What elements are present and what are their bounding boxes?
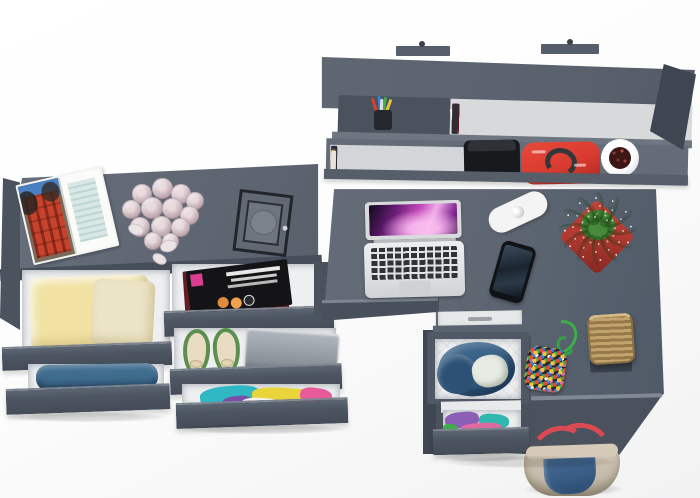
wicker-basket — [586, 312, 635, 365]
magazine-text-column — [67, 177, 108, 242]
shelf-mount-knob — [419, 41, 425, 47]
pencil-cup-body — [374, 110, 392, 130]
lantern-latch — [282, 225, 288, 231]
shelf-pot — [601, 139, 639, 177]
folded-beige-shirt — [90, 278, 155, 347]
beaded-pouch-body — [523, 345, 569, 394]
macbook-laptop — [363, 200, 468, 300]
floor-shadow — [446, 456, 616, 468]
shelf-mount-knob — [567, 39, 573, 45]
laptop-wallpaper — [369, 203, 458, 236]
rose — [152, 178, 173, 199]
candle-lantern — [232, 189, 293, 257]
highlight — [574, 164, 586, 167]
magazine-photo-dot — [230, 297, 242, 309]
shelf-mount-tab — [541, 44, 599, 54]
potted-plant — [556, 184, 642, 272]
shelf-pot-plant — [609, 147, 631, 169]
floor-shadow — [180, 424, 344, 434]
book — [452, 104, 459, 134]
laptop-screen — [365, 200, 462, 240]
beaded-pouch — [523, 323, 580, 395]
drawer-handle — [468, 317, 492, 321]
drawer-front — [433, 427, 530, 456]
drawer-front — [6, 383, 171, 415]
shelf-mount-tab — [396, 46, 450, 56]
magazine-photo-dot — [217, 296, 229, 308]
highlight — [532, 150, 546, 153]
laptop-body — [364, 241, 465, 299]
camera-bag-flap — [468, 140, 516, 152]
magazine-corner-label — [190, 273, 203, 286]
scene — [0, 0, 700, 498]
plant-leaves — [556, 184, 642, 272]
laptop-keyboard — [371, 246, 458, 280]
floor-shadow — [6, 412, 166, 422]
laptop-trackpad — [399, 281, 431, 295]
power-socket — [510, 204, 526, 220]
pencil-cup — [368, 96, 398, 132]
magazine-photo-dot — [243, 294, 255, 306]
sideboard-side-panel — [0, 178, 20, 330]
